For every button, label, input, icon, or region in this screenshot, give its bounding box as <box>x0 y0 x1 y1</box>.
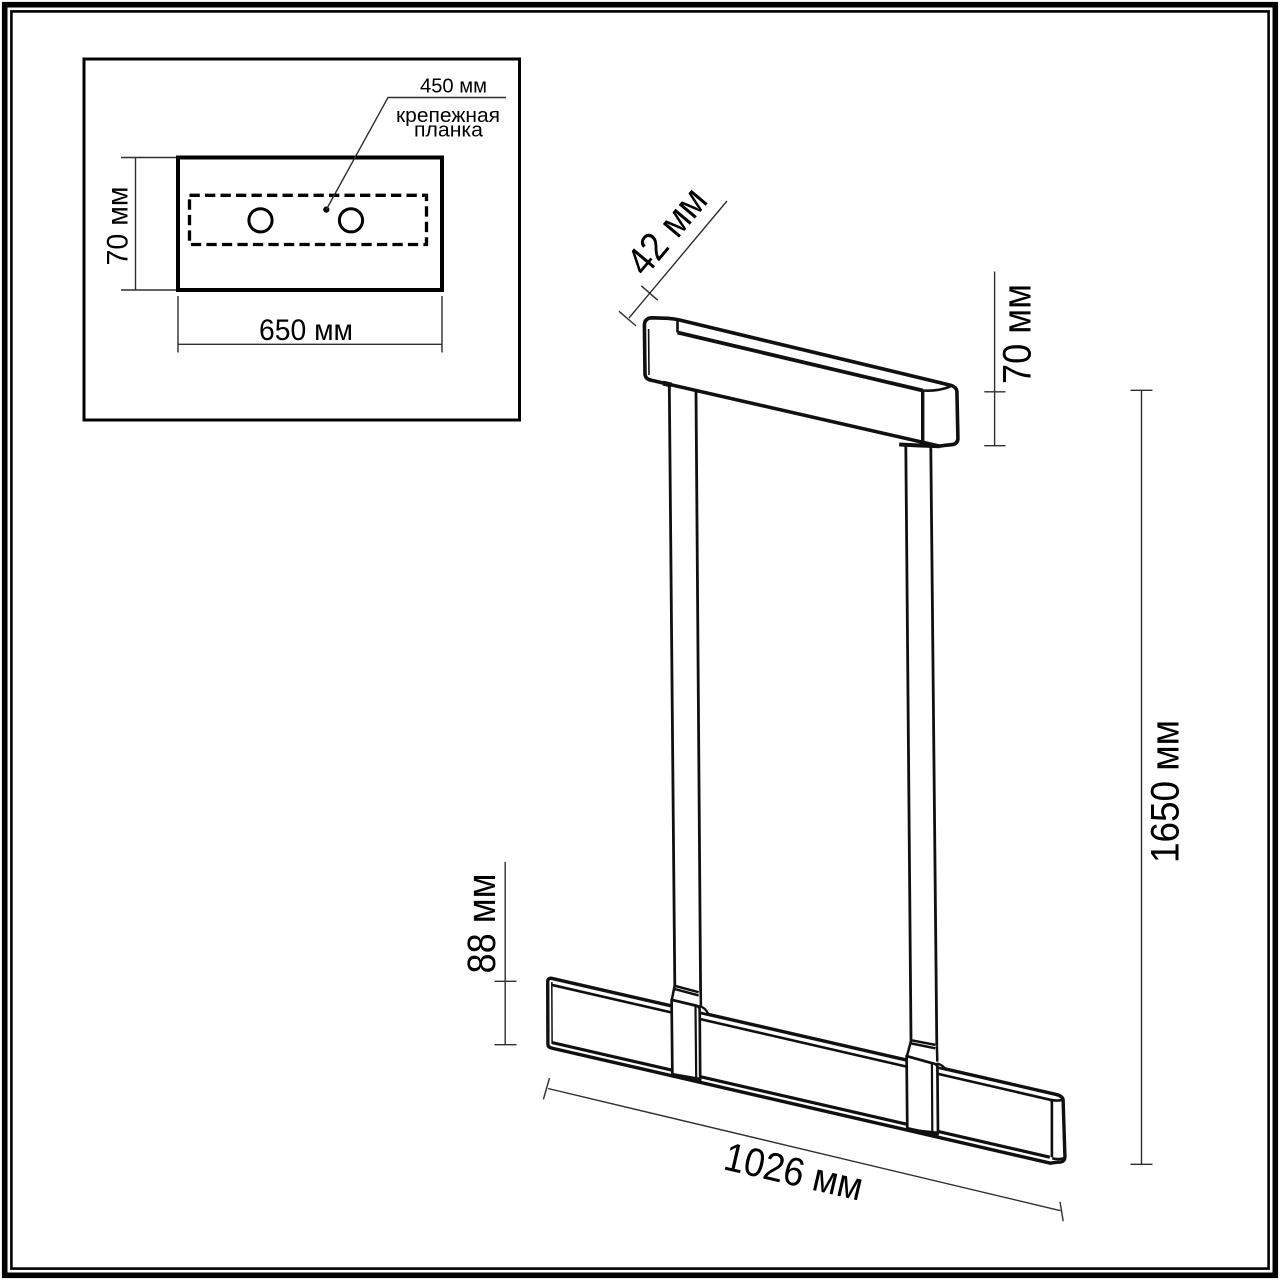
svg-text:450 мм: 450 мм <box>420 76 487 98</box>
svg-text:1650 мм: 1650 мм <box>1144 720 1188 863</box>
svg-text:70 мм: 70 мм <box>996 284 1040 384</box>
svg-text:88 мм: 88 мм <box>460 874 504 974</box>
svg-text:650 мм: 650 мм <box>259 314 353 347</box>
svg-text:планка: планка <box>414 120 484 142</box>
svg-text:70 мм: 70 мм <box>102 187 135 266</box>
